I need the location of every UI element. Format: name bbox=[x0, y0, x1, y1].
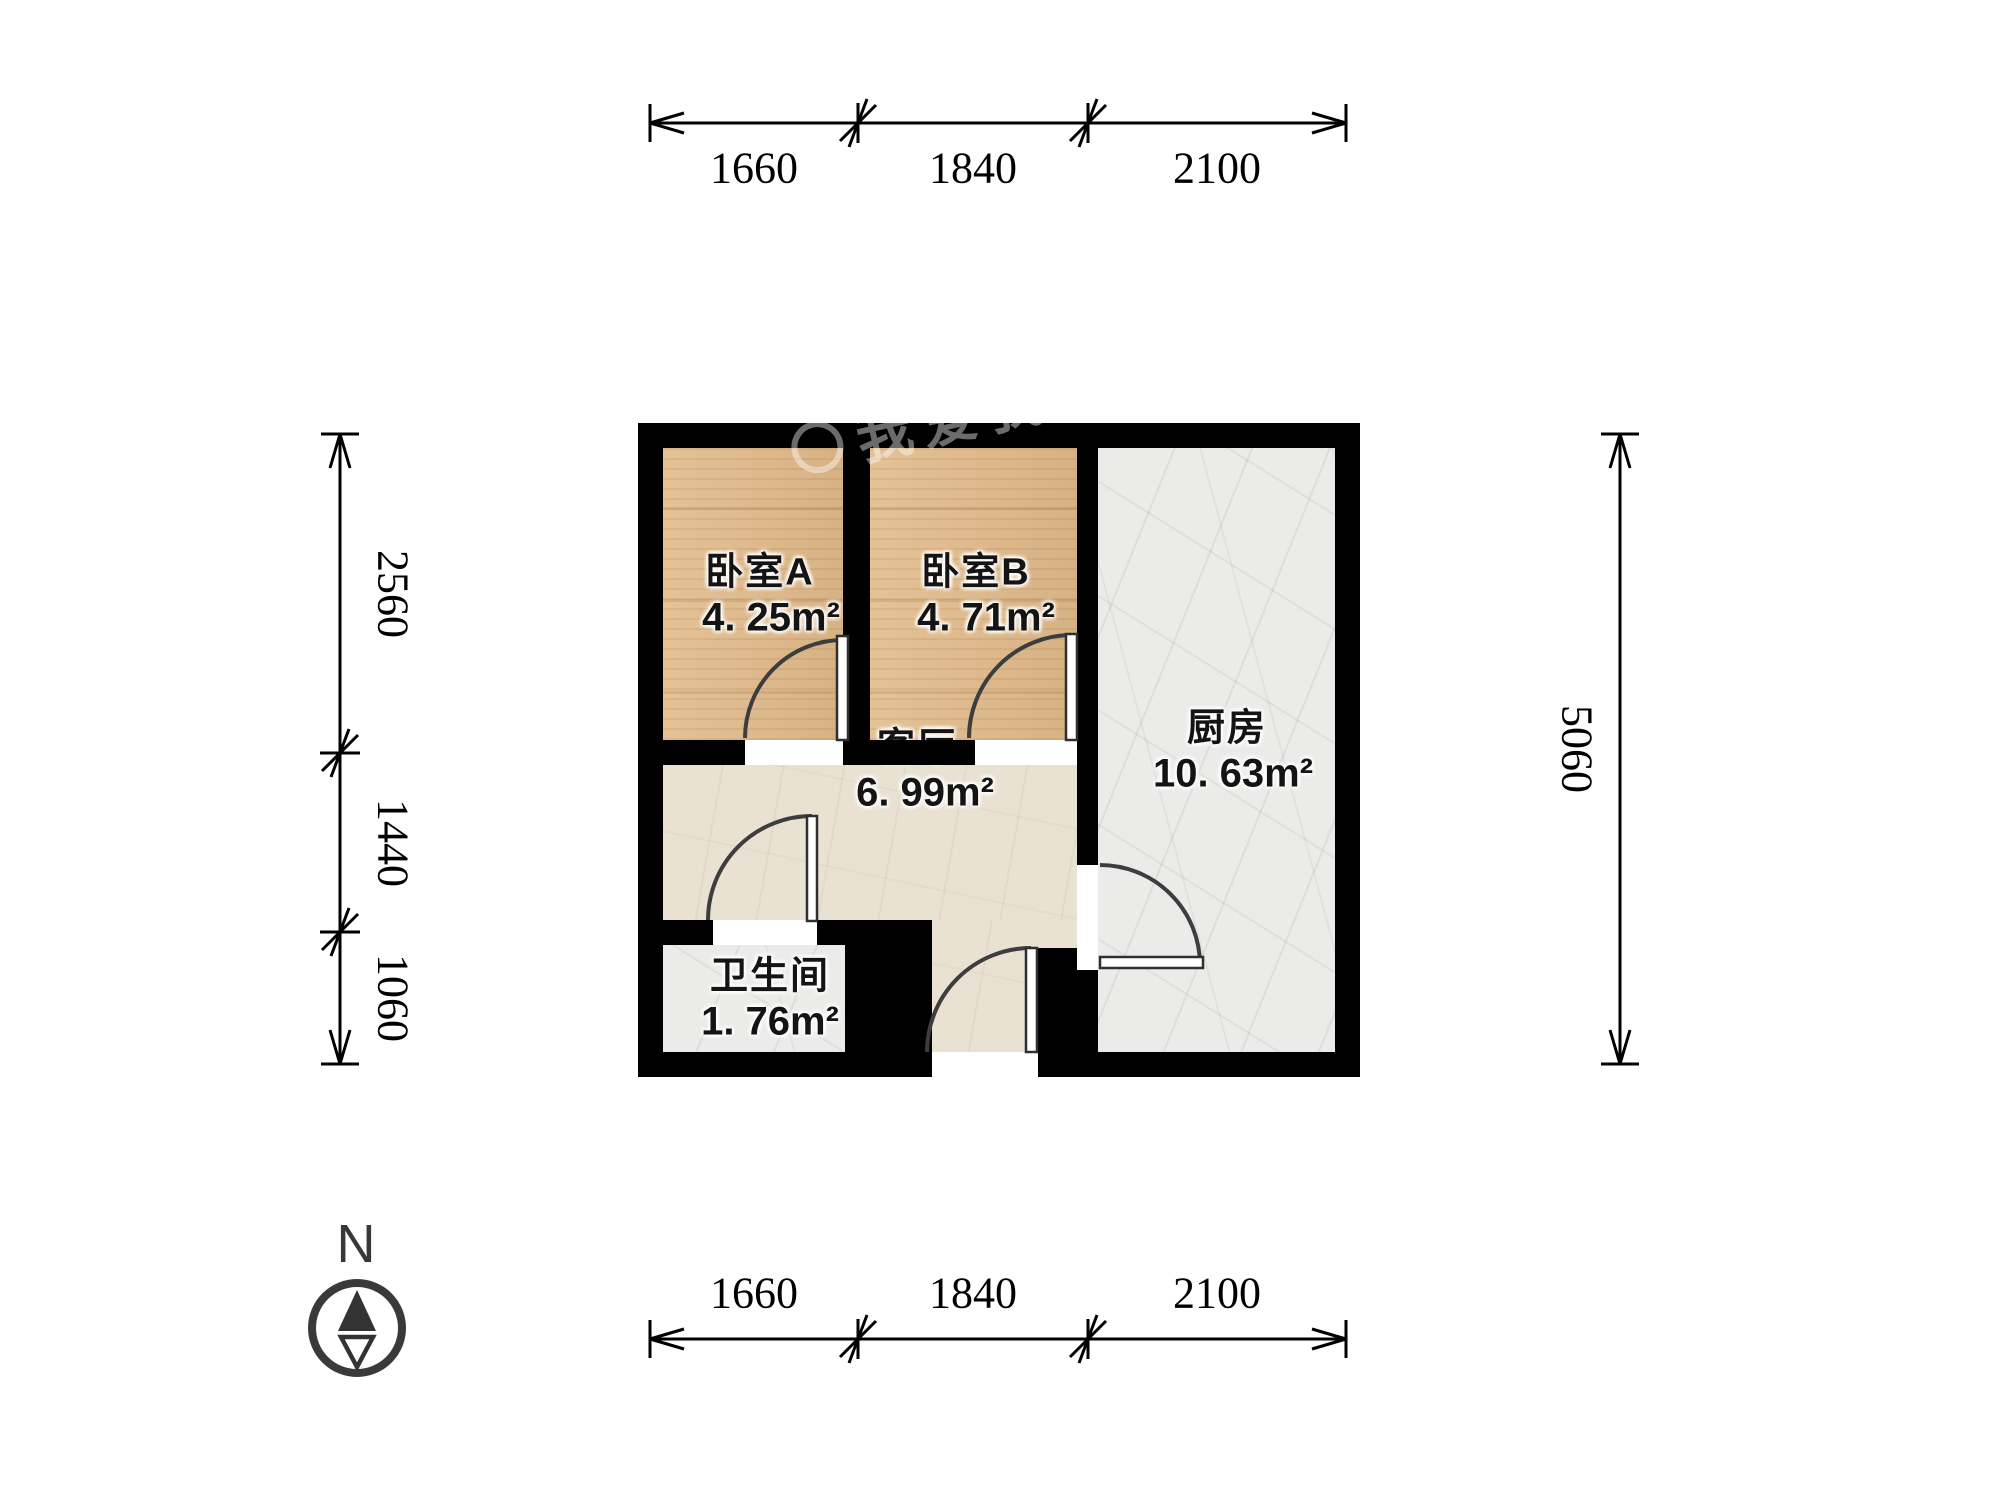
bedroom-b-name-label: 卧室B bbox=[921, 541, 1030, 596]
dim-bottom-1: 1660 bbox=[710, 1268, 798, 1319]
entry-door-arc bbox=[927, 948, 1031, 1052]
bathroom-area-label: 1. 76m² bbox=[701, 1000, 839, 1045]
bedroom-a-area-label: 4. 25m² bbox=[702, 596, 840, 641]
compass-north-label: N bbox=[337, 1213, 376, 1275]
bathroom-door-arc bbox=[708, 816, 812, 920]
dim-left-1: 2560 bbox=[368, 550, 419, 638]
dim-bottom-2: 1840 bbox=[929, 1268, 1017, 1319]
bathroom-name-label: 卫生间 bbox=[710, 945, 830, 1000]
dimension-line-right bbox=[1601, 434, 1639, 1064]
bedroom-a-door-leaf bbox=[837, 636, 848, 740]
kitchen-door-arc bbox=[1100, 865, 1200, 965]
bedroom-b-door-leaf bbox=[1066, 634, 1077, 740]
dim-left-2: 1440 bbox=[368, 799, 419, 887]
dim-top-2: 1840 bbox=[929, 143, 1017, 194]
dim-left-3: 1060 bbox=[368, 954, 419, 1042]
dim-right-1: 5060 bbox=[1552, 705, 1603, 793]
bedroom-b-door-arc bbox=[969, 635, 1072, 738]
door-leaves bbox=[807, 634, 1203, 1052]
dim-bottom-3: 2100 bbox=[1173, 1268, 1261, 1319]
living-room-area-label: 6. 99m² bbox=[856, 771, 994, 816]
bedroom-a-door-arc bbox=[745, 640, 843, 738]
dimension-line-top bbox=[650, 99, 1346, 147]
compass-icon bbox=[312, 1283, 402, 1373]
bedroom-b-area-label: 4. 71m² bbox=[917, 596, 1055, 641]
bedroom-a-name-label: 卧室A bbox=[705, 541, 814, 596]
entry-door-leaf bbox=[1026, 948, 1037, 1052]
kitchen-name-label: 厨房 bbox=[1187, 697, 1267, 752]
dimension-lines bbox=[320, 99, 1639, 1363]
dim-top-1: 1660 bbox=[710, 143, 798, 194]
floor-plan-canvas: 客厅 bbox=[0, 0, 2000, 1500]
dim-top-3: 2100 bbox=[1173, 143, 1261, 194]
dimension-line-left bbox=[320, 434, 360, 1064]
kitchen-door-leaf bbox=[1100, 957, 1203, 968]
bathroom-door-leaf bbox=[807, 816, 817, 921]
dimension-line-bottom bbox=[650, 1315, 1346, 1363]
kitchen-area-label: 10. 63m² bbox=[1153, 752, 1313, 797]
